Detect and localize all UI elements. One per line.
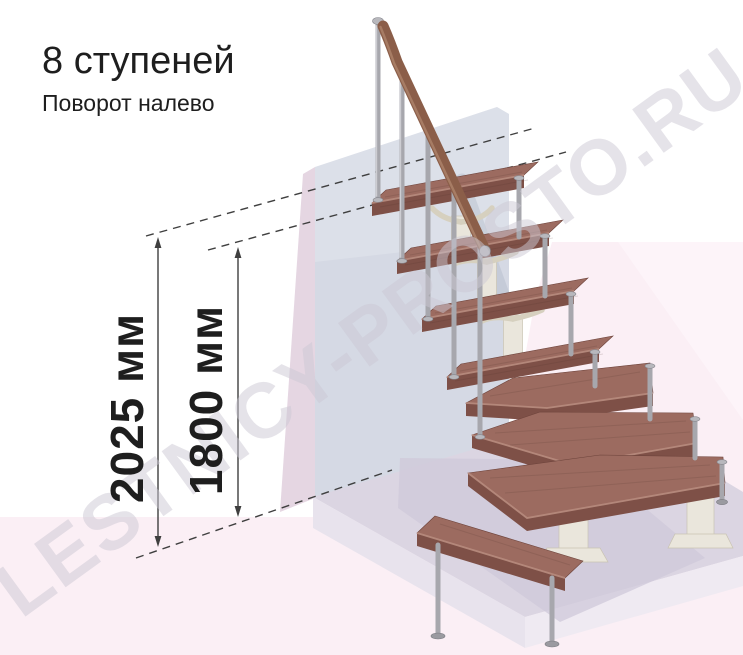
post-fitting (540, 234, 550, 239)
post-fitting (475, 435, 485, 440)
post-fitting (590, 350, 600, 355)
title-block: 8 ступеней Поворот налево (42, 40, 235, 117)
post-fitting (373, 198, 383, 203)
post-fitting (717, 460, 727, 465)
stringer-mast-right-base (668, 534, 733, 548)
post-fitting (690, 417, 700, 422)
post-foot (717, 499, 728, 504)
leg-foot (545, 641, 559, 647)
post-fitting (423, 317, 433, 322)
leg-foot (431, 633, 445, 639)
page-root: LESTNICY-PROSTO.RU 8 ступеней Поворот на… (0, 0, 743, 655)
post-fitting (397, 259, 407, 264)
page-subtitle: Поворот налево (42, 90, 235, 117)
post-fitting (449, 375, 459, 380)
dimension-label-2025: 2025 мм (100, 313, 154, 503)
post-fitting (645, 364, 655, 369)
page-title: 8 ступеней (42, 40, 235, 83)
post-fitting (514, 176, 524, 181)
handrail-end-cap (480, 246, 491, 257)
dimension-label-1800: 1800 мм (179, 305, 233, 495)
post-fitting (566, 292, 576, 297)
